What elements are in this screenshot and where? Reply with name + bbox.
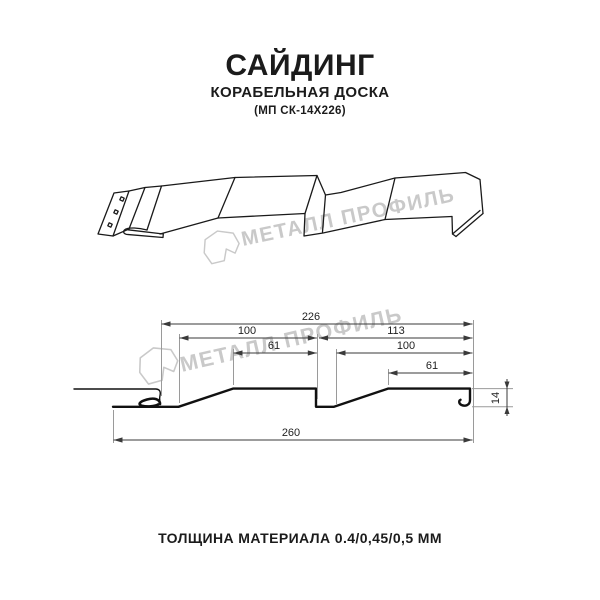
- watermark-brand-text: МЕТАЛЛ ПРОФИЛЬ: [178, 302, 405, 377]
- dim-label-61a: 61: [268, 340, 280, 352]
- dim-label-100a: 100: [238, 325, 256, 337]
- metal-profil-logo-icon: [201, 228, 242, 265]
- adjacent-panel-edge: [74, 389, 161, 403]
- dim-label-14: 14: [490, 392, 502, 404]
- lock-seam-curl: [140, 399, 160, 407]
- dim-label-61b: 61: [426, 360, 438, 372]
- dim-label-260: 260: [282, 427, 300, 439]
- profile-outline: [113, 389, 470, 407]
- watermark-brand-text: МЕТАЛЛ ПРОФИЛЬ: [239, 183, 457, 251]
- dim-label-226: 226: [302, 311, 320, 323]
- dim-label-113: 113: [387, 325, 405, 337]
- metal-profil-logo-icon: [135, 344, 181, 386]
- technical-drawing: МЕТАЛЛ ПРОФИЛЬ МЕТАЛЛ ПРОФИЛЬ: [0, 0, 600, 600]
- thickness-note: ТОЛЩИНА МАТЕРИАЛА 0.4/0,45/0,5 ММ: [0, 529, 600, 547]
- dim-label-100b: 100: [397, 340, 415, 352]
- watermark-3d-view: МЕТАЛЛ ПРОФИЛЬ: [201, 183, 457, 265]
